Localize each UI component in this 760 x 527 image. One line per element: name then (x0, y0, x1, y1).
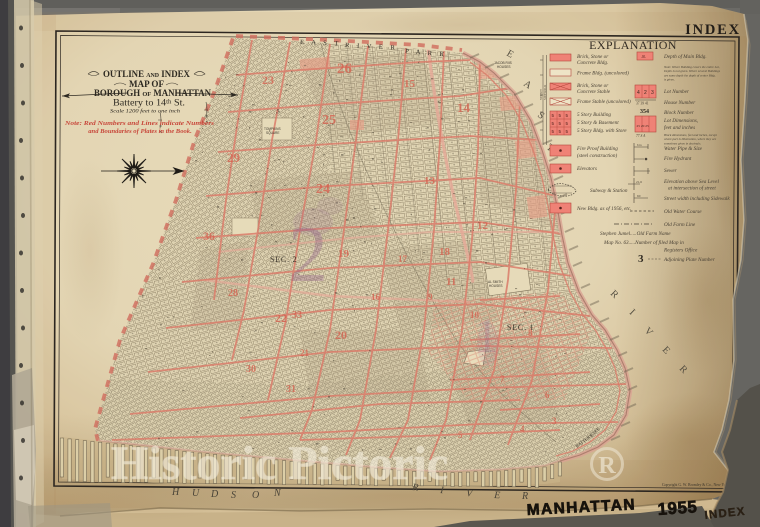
svg-text:Registers Office: Registers Office (663, 247, 698, 254)
svg-text:10: 10 (470, 310, 480, 320)
svg-text:25 20 25: 25 20 25 (637, 124, 650, 128)
svg-text:is given.: is given. (664, 78, 675, 82)
svg-text:Street width including Sidewal: Street width including Sidewalk (664, 196, 730, 202)
svg-text:E: E (493, 490, 501, 501)
svg-text:18: 18 (439, 246, 451, 258)
svg-text:(steel construction): (steel construction) (577, 152, 617, 159)
svg-text:7: 7 (500, 374, 505, 384)
svg-text:Subway & Station: Subway & Station (590, 188, 628, 194)
svg-text:Historic Pictoric: Historic Pictoric (111, 437, 448, 490)
svg-text:Depth of Main Bldg.: Depth of Main Bldg. (663, 53, 707, 60)
svg-text:354: 354 (640, 109, 649, 115)
svg-text:Lot Number: Lot Number (663, 89, 690, 95)
svg-text:INDEX: INDEX (685, 22, 741, 38)
svg-text:HOUSES: HOUSES (489, 284, 502, 288)
svg-text:Block Number: Block Number (664, 110, 695, 116)
svg-text:19: 19 (338, 248, 350, 260)
svg-text:15: 15 (404, 78, 416, 90)
svg-text:House Number: House Number (663, 100, 696, 106)
svg-text:37 39 41: 37 39 41 (636, 102, 649, 106)
svg-text:5 Story Building: 5 Story Building (577, 112, 611, 118)
svg-text:Elevation above Sea Level: Elevation above Sea Level (663, 179, 719, 185)
svg-text:Frame Stable (uncolored): Frame Stable (uncolored) (576, 98, 631, 105)
svg-text:2: 2 (644, 90, 647, 96)
svg-text:28: 28 (228, 288, 238, 299)
svg-text:Lot Dimensions,: Lot Dimensions, (663, 118, 698, 124)
svg-text:9: 9 (428, 292, 433, 302)
svg-text:sometimes given in decimals.: sometimes given in decimals. (664, 141, 701, 145)
svg-text:25: 25 (322, 113, 336, 128)
svg-text:Frame Bldg. (uncolored): Frame Bldg. (uncolored) (576, 70, 629, 77)
svg-text:D: D (210, 489, 219, 500)
svg-text:HOUSES: HOUSES (497, 65, 510, 69)
svg-text:EXPLANATION: EXPLANATION (589, 38, 677, 52)
svg-text:22: 22 (275, 311, 287, 325)
svg-text:and Boundaries of Plates in th: and Boundaries of Plates in the Book. (88, 128, 192, 135)
svg-text:Adjoining Plate Number: Adjoining Plate Number (663, 257, 716, 263)
svg-text:23: 23 (262, 73, 274, 87)
svg-text:1955: 1955 (657, 497, 698, 519)
svg-text:24: 24 (316, 182, 330, 197)
svg-text:at intersection of street: at intersection of street (668, 185, 716, 192)
svg-text:21.6: 21.6 (636, 180, 642, 184)
svg-text:Concrete Stable: Concrete Stable (577, 89, 611, 95)
svg-text:S: S (231, 490, 236, 501)
svg-text:Sewer: Sewer (664, 168, 678, 174)
svg-text:12: 12 (477, 220, 489, 232)
svg-text:R: R (598, 453, 616, 479)
svg-text:11: 11 (446, 276, 456, 288)
svg-text:29: 29 (227, 150, 241, 165)
svg-text:4: 4 (637, 90, 640, 96)
svg-text:8: 8 (528, 328, 533, 338)
svg-text:13: 13 (424, 175, 436, 187)
svg-text:feet and inches: feet and inches (664, 124, 695, 131)
svg-text:20: 20 (335, 328, 347, 342)
svg-text:O: O (252, 490, 259, 501)
svg-text:3: 3 (638, 253, 644, 265)
svg-text:SIDEWALK: SIDEWALK (543, 84, 547, 100)
svg-text:.8.: .8. (641, 54, 646, 59)
svg-text:BOROUGH OF MANHATTAN: BOROUGH OF MANHATTAN (94, 88, 211, 98)
svg-text:Fire Hydrant: Fire Hydrant (663, 156, 692, 162)
svg-text:14: 14 (457, 100, 471, 115)
svg-text:4: 4 (520, 424, 525, 434)
svg-text:Old Farm Line: Old Farm Line (664, 222, 696, 228)
svg-text:Scale 1200 feet to one inch: Scale 1200 feet to one inch (110, 108, 180, 115)
svg-text:17: 17 (398, 254, 408, 264)
svg-text:60: 60 (637, 194, 641, 198)
svg-text:5 Story Bldg. with Store: 5 Story Bldg. with Store (577, 128, 627, 134)
svg-text:E A S T: E A S T (300, 39, 342, 47)
svg-text:3: 3 (552, 416, 557, 426)
svg-text:Concrete Bldg.: Concrete Bldg. (577, 60, 608, 66)
svg-text:Stephen Jumel.....Old Farm Nam: Stephen Jumel.....Old Farm Name (600, 231, 671, 237)
svg-text:Water Pipe & Size: Water Pipe & Size (664, 146, 703, 152)
svg-text:Battery to 14th St.: Battery to 14th St. (113, 98, 185, 108)
svg-text:Fire Proof Building: Fire Proof Building (576, 145, 618, 152)
svg-text:Old Water Course: Old Water Course (664, 209, 702, 215)
svg-text:21: 21 (300, 348, 310, 358)
svg-text:3: 3 (651, 90, 654, 96)
svg-text:36: 36 (203, 229, 215, 243)
svg-text:Note: Red Numbers and Lines in: Note: Red Numbers and Lines indicate Num… (64, 120, 215, 127)
svg-text:16: 16 (371, 292, 381, 302)
svg-text:SQUARE: SQUARE (266, 131, 279, 135)
svg-text:33: 33 (292, 310, 302, 321)
svg-text:26: 26 (337, 61, 353, 77)
svg-text:R: R (521, 491, 528, 502)
svg-text:31: 31 (286, 384, 296, 395)
svg-text:5 Story & Basement: 5 Story & Basement (577, 120, 619, 126)
svg-text:6 in: 6 in (637, 143, 642, 147)
svg-text:New Bldg. as of 1956, etc.: New Bldg. as of 1956, etc. (576, 205, 631, 212)
svg-text:Elevators: Elevators (576, 166, 597, 172)
svg-text:5: 5 (458, 430, 463, 440)
svg-text:77 S A: 77 S A (636, 134, 646, 138)
svg-text:6: 6 (545, 390, 550, 400)
svg-text:30: 30 (246, 364, 256, 375)
svg-text:Map No. 63.....Number of filed: Map No. 63.....Number of filed Map in (603, 239, 684, 246)
